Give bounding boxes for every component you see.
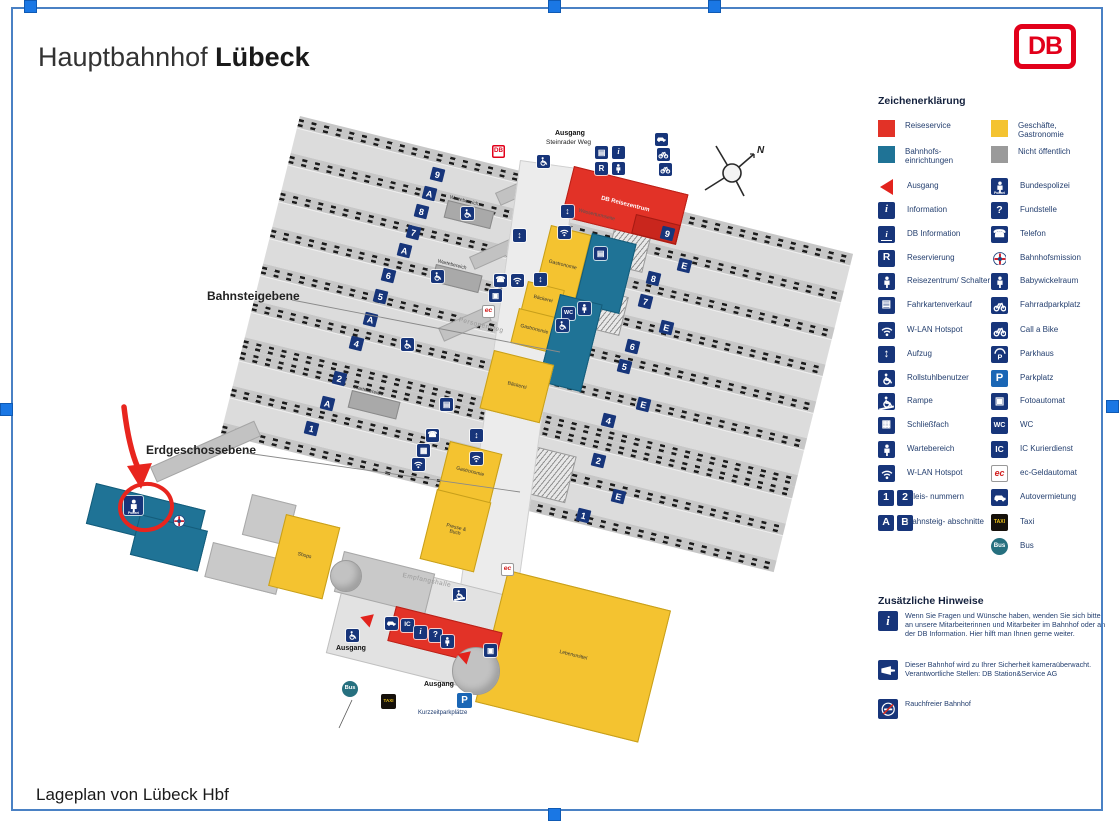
selection-handle[interactable] [548, 808, 561, 821]
selection-handle[interactable] [24, 0, 37, 13]
selection-frame [11, 7, 1103, 811]
selection-handle[interactable] [548, 0, 561, 13]
selection-handle[interactable] [708, 0, 721, 13]
page: Hauptbahnhof Lübeck DB Lageplan von Lübe… [0, 0, 1120, 822]
selection-handle[interactable] [0, 403, 13, 416]
selection-handle[interactable] [1106, 400, 1119, 413]
